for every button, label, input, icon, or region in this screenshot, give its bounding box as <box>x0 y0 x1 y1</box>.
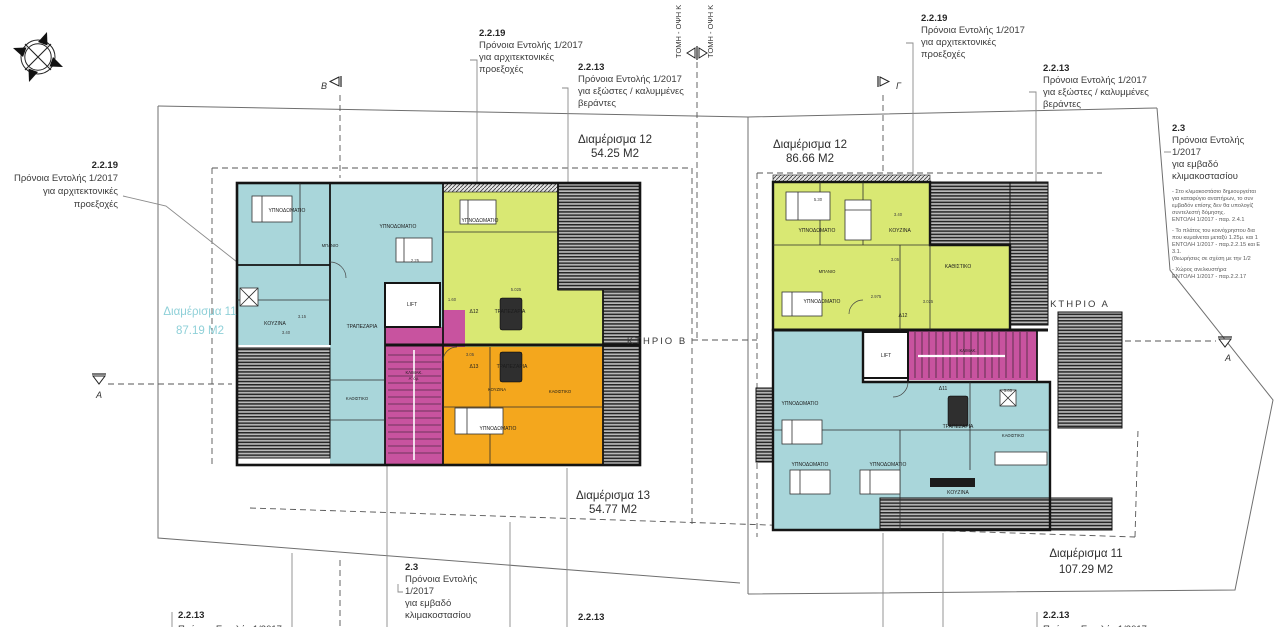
apartment-label-b12: Διαμέρισμα 12 54.25 M2 <box>578 134 652 160</box>
annotation-note: (θεωρήσεις σε σχέση με την 1/2 <box>1172 255 1251 262</box>
apartment-label-b13: Διαμέρισμα 13 54.77 M2 <box>576 490 650 516</box>
annotation-note: - Το πλάτος του κοινόχρηστου δια <box>1172 227 1256 234</box>
annotation-ref: 2.2.13 <box>1043 610 1069 621</box>
room-label: ΚΛΙΜΑΚ. <box>406 370 423 375</box>
dimension-label: 2.975 <box>871 294 882 299</box>
section-label: Β <box>321 81 327 91</box>
apartment-area: 86.66 M2 <box>786 153 834 165</box>
room-label: ΤΡΑΠΕΖΑΡΙΑ <box>943 424 974 430</box>
apartment-label-a11: Διαμέρισμα 11 107.29 M2 <box>1049 548 1122 576</box>
annotation-line: για αρχιτεκτονικές <box>43 186 118 197</box>
room-label: ΤΡΑΠΕΖΑΡΙΑ <box>495 309 526 315</box>
room-label: ΚΑΘΙΣΤΙΚΟ <box>346 396 369 401</box>
section-elevation-label: ΤΟΜΗ - ΟΨΗ Κ <box>706 5 715 58</box>
annotation-line: για αρχιτεκτονικές <box>921 37 996 48</box>
annotation-line: για εμβαδό <box>405 598 451 609</box>
annotation-note: 3.1. <box>1172 249 1182 255</box>
annotation-ref: 2.2.19 <box>479 28 505 39</box>
room-label: ΥΠΝΟΔΩΜΑΤΙΟ <box>480 426 517 432</box>
apartment-name: Διαμέρισμα 11 <box>163 306 236 318</box>
kitchen-counter <box>930 478 975 487</box>
dimension-label: 3.05 <box>466 352 475 357</box>
room-label: LIFT <box>407 302 417 308</box>
room-label: ΚΛΙΜΑΚ. <box>960 348 977 353</box>
annotation-ref: 2.2.19 <box>921 13 947 24</box>
annotation-line: Πρόνοια Εντολής 1/2017 <box>578 74 682 85</box>
section-label: Α <box>1224 353 1231 363</box>
bed-icon <box>786 192 830 220</box>
veranda-hatch <box>237 348 330 458</box>
room-label: ΜΠΑΝΙΟ <box>819 269 836 274</box>
veranda-hatch <box>1010 182 1048 325</box>
annotation-b-2219: 2.2.19 Πρόνοια Εντολής 1/2017 για αρχιτε… <box>479 28 583 75</box>
annotation-ref: 2.2.13 <box>1043 63 1069 74</box>
annotation-ref: 2.3 <box>405 562 418 573</box>
annotation-note: ΕΝΤΟΛΗ 1/2017 - παρ.2.2.15 και Ε <box>1172 242 1260 248</box>
annotation-line: για αρχιτεκτονικές <box>479 52 554 63</box>
floor-plan-drawing: ΥΠΝΟΔΩΜΑΤΙΟ ΥΠΝΟΔΩΜΑΤΙΟ ΜΠΑΝΙΟ ΚΟΥΖΙΝΑ Τ… <box>0 0 1280 627</box>
annotation-line: προεξοχές <box>921 49 966 60</box>
room-label: Δ12 <box>470 309 479 315</box>
apartment-label-b11: Διαμέρισμα 11 87.19 M2 <box>163 306 236 337</box>
annotation-note: - Χώρος ανελκυστήρα <box>1172 266 1227 273</box>
room-label: ΥΠΝΟΔΩΜΑΤΙΟ <box>380 224 417 230</box>
veranda-hatch <box>756 388 773 462</box>
section-marker-g: Γ <box>878 76 902 91</box>
dimension-label: 3.05 <box>891 257 900 262</box>
room-label: ΚΟΥΖΙΝΑ <box>488 387 506 392</box>
room-label: Δ13 <box>470 364 479 370</box>
annotation-line: προεξοχές <box>479 64 524 75</box>
dimension-label: 3.15 <box>298 314 307 319</box>
apartment-area: 54.77 M2 <box>589 504 637 516</box>
annotation-b-2213: 2.2.13 Πρόνοια Εντολής 1/2017 για εξώστε… <box>578 62 684 109</box>
apartment-name: Διαμέρισμα 12 <box>773 139 847 151</box>
annotation-ref: 2.3 <box>1172 123 1185 134</box>
dimension-label: 5.30 <box>814 197 823 202</box>
annotation-right-23: 2.3 Πρόνοια Εντολής 1/2017 για εμβαδό κλ… <box>1172 123 1260 280</box>
apartment-area: 54.25 M2 <box>591 148 639 160</box>
apartment-label-a12: Διαμέρισμα 12 86.66 M2 <box>773 139 847 165</box>
annotation-note: εμβαδόν επίσης δεν θα υπολογίζ <box>1172 202 1254 209</box>
annotation-line: βεράντες <box>578 98 616 109</box>
section-marker-tomi: ΤΟΜΗ - ΟΨΗ Κ ΤΟΜΗ - ΟΨΗ Κ <box>674 5 715 60</box>
annotation-bottom-23: 2.3 Πρόνοια Εντολής 1/2017 για εμβαδό κλ… <box>405 562 478 621</box>
annotation-line: για εμβαδό <box>1172 159 1218 170</box>
section-elevation-label: ΤΟΜΗ - ΟΨΗ Κ <box>674 5 683 58</box>
apartment-area: 87.19 M2 <box>176 325 224 337</box>
building-label-b: ΚΤΗΡΙΟ Β <box>627 336 687 347</box>
room-label: ΚΟΥΖΙΝΑ <box>264 321 286 327</box>
annotation-note: για καταφύγιο αναπήρων, το συν <box>1172 195 1254 202</box>
annotation-line: προεξοχές <box>74 199 119 210</box>
room-label: ΥΠΝΟΔΩΜΑΤΙΟ <box>792 462 829 468</box>
building-a-plan: ΥΠΝΟΔΩΜΑΤΙΟ ΚΟΥΖΙΝΑ ΜΠΑΝΙΟ ΚΑΘΙΣΤΙΚΟ ΥΠΝ… <box>756 175 1122 530</box>
dimension-label: 3.025 <box>923 299 934 304</box>
edge-hatch <box>443 183 558 192</box>
room-label: ΥΠΝΟΔΩΜΑΤΙΟ <box>782 401 819 407</box>
room-label: ΤΡΑΠΕΖΑΡΙΑ <box>497 364 528 370</box>
veranda-hatch <box>1058 312 1122 428</box>
dimension-label: 3.40 <box>282 330 291 335</box>
annotation-line: 1/2017 <box>1172 147 1201 158</box>
dimension-label: 1.60 <box>448 297 457 302</box>
annotation-line: Πρόνοια Εντολής 1/2017 <box>14 173 118 184</box>
dimension-label: 3.40 <box>894 212 903 217</box>
annotation-a-2213: 2.2.13 Πρόνοια Εντολής 1/2017 για εξώστε… <box>1043 63 1149 110</box>
section-label: Γ <box>896 81 902 91</box>
dimension-label: 5.05 <box>1004 388 1013 393</box>
annotation-note: ΕΝΤΟΛΗ 1/2017 - παρ. 2.4.1 <box>1172 217 1245 223</box>
annotation-note: συντελεστή δόμησης. <box>1172 209 1225 216</box>
annotation-bottom-right-2213: 2.2.13 Πρόνοια Εντολής 1/2017 <box>1043 610 1147 627</box>
room-label: Δ11 <box>939 386 948 392</box>
room-label: ΥΠΝΟΔΩΜΑΤΙΟ <box>462 218 499 224</box>
section-marker-a-right: Α <box>1218 337 1232 363</box>
annotation-bottom-mid-2213: 2.2.13 Πρόνοια Εντολής 1/2017 <box>578 612 682 627</box>
wardrobe-icon <box>240 288 258 306</box>
section-marker-a-left: Α <box>92 374 106 400</box>
annotation-line: Πρόνοια Εντολής 1/2017 <box>1043 75 1147 86</box>
room-label: ΜΠΑΝΙΟ <box>322 243 339 248</box>
room-label: Δ12 <box>899 313 908 319</box>
sofa-icon <box>995 452 1047 465</box>
dining-table-icon <box>948 396 968 426</box>
room-label: ΥΠΝΟΔΩΜΑΤΙΟ <box>799 228 836 234</box>
plan-canvas: ΥΠΝΟΔΩΜΑΤΙΟ ΥΠΝΟΔΩΜΑΤΙΟ ΜΠΑΝΙΟ ΚΟΥΖΙΝΑ Τ… <box>0 0 1280 627</box>
annotation-line: Πρόνοια Εντολής 1/2017 <box>479 40 583 51</box>
annotation-a-2219: 2.2.19 Πρόνοια Εντολής 1/2017 για αρχιτε… <box>921 13 1025 60</box>
room-label: ΚΟΥΖΙΝΑ <box>889 228 911 234</box>
room-label: ΥΠΝΟΔΩΜΑΤΙΟ <box>870 462 907 468</box>
annotation-ref: 2.2.13 <box>578 612 604 623</box>
annotation-ref: 2.2.19 <box>92 160 118 171</box>
annotation-line: κλιμακοστασίου <box>405 610 471 621</box>
room-label: LIFT <box>881 353 891 359</box>
veranda-hatch <box>558 183 640 290</box>
section-marker-b: Β <box>321 76 341 91</box>
room-label: ΚΟΥΖΙΝΑ <box>947 490 969 496</box>
annotation-line: Πρόνοια Εντολής <box>1172 135 1245 146</box>
annotation-note: ΕΝΤΟΛΗ 1/2017 - παρ.2.2.17 <box>1172 274 1246 280</box>
annotation-ref: 2.2.13 <box>178 610 204 621</box>
annotation-line: Πρόνοια Εντολής 1/2017 <box>921 25 1025 36</box>
annotation-line: 1/2017 <box>405 586 434 597</box>
annotation-line: κλιμακοστασίου <box>1172 171 1238 182</box>
apartment-area: 107.29 M2 <box>1059 564 1113 576</box>
room-label: Α' όρ. <box>409 376 420 381</box>
annotation-left-2219: 2.2.19 Πρόνοια Εντολής 1/2017 για αρχιτε… <box>14 160 118 210</box>
building-b-plan: ΥΠΝΟΔΩΜΑΤΙΟ ΥΠΝΟΔΩΜΑΤΙΟ ΜΠΑΝΙΟ ΚΟΥΖΙΝΑ Τ… <box>237 183 640 465</box>
room-label: ΚΑΘΙΣΤΙΚΟ <box>1002 433 1025 438</box>
annotation-line: Πρόνοια Εντολής <box>405 574 478 585</box>
apartment-name: Διαμέρισμα 11 <box>1049 548 1122 560</box>
annotation-bottom-left-2213: 2.2.13 Πρόνοια Εντολής 1/2017 <box>178 610 282 627</box>
room-label: ΚΑΘΙΣΤΙΚΟ <box>549 389 572 394</box>
building-label-a: ΚΤΗΡΙΟ Α <box>1050 299 1110 310</box>
annotation-line: για εξώστες / καλυμμένες <box>578 86 684 97</box>
annotation-line: για εξώστες / καλυμμένες <box>1043 87 1149 98</box>
apartment-name: Διαμέρισμα 12 <box>578 134 652 146</box>
bed-icon <box>860 470 900 494</box>
annotation-ref: 2.2.13 <box>578 62 604 73</box>
compass-rose-icon <box>13 32 63 82</box>
annotation-note: - Στο κλιμακοστάσιο δημιουργείται <box>1172 188 1257 195</box>
room-label: ΥΠΝΟΔΩΜΑΤΙΟ <box>804 299 841 305</box>
bed-icon <box>790 470 830 494</box>
veranda-hatch <box>930 182 1010 245</box>
dimension-label: 5.025 <box>511 287 522 292</box>
veranda-hatch <box>880 498 1112 530</box>
annotation-note: που κυμαίνεται μεταξύ 1.25μ. και 1 <box>1172 235 1258 241</box>
veranda-hatch <box>603 290 640 465</box>
room-label: ΥΠΝΟΔΩΜΑΤΙΟ <box>269 208 306 214</box>
annotation-line: βεράντες <box>1043 99 1081 110</box>
bed-icon <box>782 420 822 444</box>
section-label: Α <box>95 390 102 400</box>
bed-icon <box>845 200 871 240</box>
room-label: ΤΡΑΠΕΖΑΡΙΑ <box>347 324 378 330</box>
apartment-name: Διαμέρισμα 13 <box>576 490 650 502</box>
room-label: ΚΑΘΙΣΤΙΚΟ <box>945 264 972 270</box>
dimension-label: 2.25 <box>411 258 420 263</box>
